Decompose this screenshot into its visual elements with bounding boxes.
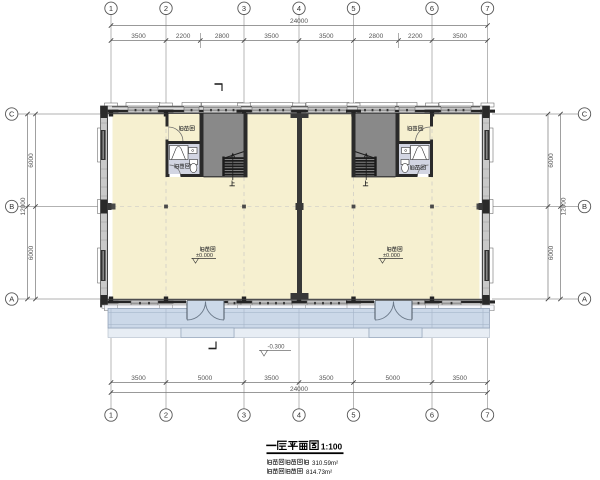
svg-text:2800: 2800 — [215, 33, 230, 40]
svg-text:3: 3 — [242, 4, 246, 13]
svg-text:7: 7 — [485, 411, 489, 420]
svg-text:2200: 2200 — [408, 33, 423, 40]
svg-text:3500: 3500 — [319, 33, 334, 40]
svg-text:310.59m²: 310.59m² — [312, 460, 338, 467]
svg-text:6: 6 — [430, 4, 434, 13]
svg-text:6000: 6000 — [28, 153, 35, 168]
svg-text:2: 2 — [164, 4, 168, 13]
svg-text:12000: 12000 — [20, 197, 27, 215]
svg-text:-0.300: -0.300 — [267, 345, 285, 351]
svg-text:A: A — [582, 295, 587, 304]
svg-text:24000: 24000 — [290, 386, 308, 393]
svg-text:3: 3 — [242, 411, 246, 420]
svg-text:3500: 3500 — [453, 33, 468, 40]
svg-text:5000: 5000 — [386, 375, 401, 382]
svg-text:6000: 6000 — [548, 153, 555, 168]
svg-text:5000: 5000 — [198, 375, 213, 382]
svg-text:3500: 3500 — [131, 33, 146, 40]
svg-text:1:100: 1:100 — [321, 442, 343, 452]
svg-text:3500: 3500 — [264, 33, 279, 40]
svg-text:6000: 6000 — [548, 245, 555, 260]
svg-text:814.73m²: 814.73m² — [306, 469, 332, 475]
svg-text:3500: 3500 — [264, 375, 279, 382]
svg-text:4: 4 — [297, 411, 301, 420]
svg-text:B: B — [9, 202, 14, 211]
svg-text:3500: 3500 — [319, 375, 334, 382]
svg-text:2200: 2200 — [176, 33, 191, 40]
svg-text:3500: 3500 — [131, 375, 146, 382]
svg-text:5: 5 — [351, 4, 355, 13]
svg-text:12000: 12000 — [561, 197, 568, 215]
svg-text:2800: 2800 — [369, 33, 384, 40]
svg-text:5: 5 — [351, 411, 355, 420]
svg-text:A: A — [9, 295, 14, 304]
svg-text:1: 1 — [109, 4, 113, 13]
svg-text:4: 4 — [297, 4, 301, 13]
svg-text:2: 2 — [164, 411, 168, 420]
svg-text:C: C — [9, 110, 15, 119]
svg-text:6000: 6000 — [28, 245, 35, 260]
svg-text:24000: 24000 — [290, 18, 308, 25]
svg-text:1: 1 — [109, 411, 113, 420]
svg-text:3500: 3500 — [453, 375, 468, 382]
svg-text:7: 7 — [485, 4, 489, 13]
svg-text:6: 6 — [430, 411, 434, 420]
svg-text:C: C — [582, 110, 588, 119]
svg-text:B: B — [582, 202, 587, 211]
